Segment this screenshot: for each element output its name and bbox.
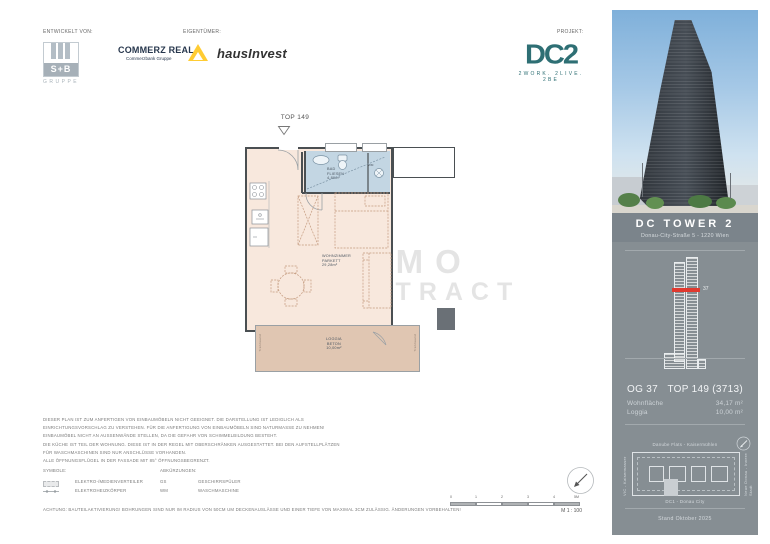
- scale-tick: 2: [501, 495, 503, 499]
- scale-bar-segments: [450, 502, 580, 506]
- sb-gruppe-logo-mark: S+B: [43, 42, 79, 77]
- owner-label: EIGENTÜMER:: [183, 29, 221, 35]
- siteplan-north-label: Danube Flats - Kaisermühlen: [630, 442, 740, 447]
- floorplan-sheet: ENTWICKELT VON: S+B GRUPPE EIGENTÜMER: C…: [0, 0, 770, 544]
- loggia-label: Loggia: [627, 409, 648, 416]
- floor-marker: [672, 288, 700, 292]
- disclaimer-line: EINBAUMÖBEL NICHT AN AUSSENWÄNDE STELLEN…: [43, 432, 340, 440]
- divider: [625, 508, 745, 509]
- warning-note: ACHTUNG: BAUTEILAKTIVIERUNG! BOHRUNGEN S…: [43, 506, 461, 514]
- symbols-label: SYMBOLE:: [43, 468, 67, 473]
- siteplan-dc2-highlight: [664, 479, 678, 496]
- wohnflaeche-label: Wohnfläche: [627, 400, 663, 407]
- commerzbank-triangle-icon: [188, 44, 208, 61]
- plan-date: Stand Oktober 2025: [612, 516, 758, 522]
- symbol-label-1: ELEKTRO-/MEDIENVERTEILER: [75, 479, 143, 484]
- hausinvest-logo: hausInvest: [217, 46, 287, 61]
- abbreviations-label: ABKÜRZUNGEN:: [160, 468, 197, 473]
- siteplan-south-label: DC1 - Donau City: [630, 499, 740, 504]
- wohnflaeche-value: 34,17 m²: [716, 400, 743, 407]
- disclaimer-line: EINRICHTUNGSVORSCHLAG ZU VERSTEHEN. FÜR …: [43, 424, 340, 432]
- abbr-gs-label: GESCHIRRSPÜLER: [198, 479, 241, 484]
- tower-photo: [612, 10, 758, 213]
- plan-linework: [243, 113, 458, 379]
- scale-label: M 1 : 100: [542, 508, 582, 514]
- scale-tick: 1: [475, 495, 477, 499]
- site-plan: Danube Flats - Kaisermühlen VIC - Kaiser…: [612, 430, 758, 505]
- siteplan-west-label: VIC - Kaiserwasser: [622, 452, 627, 496]
- disclaimer-line: DIE KÜCHE IST TEIL DER WOHNUNG. DIESE IS…: [43, 441, 340, 449]
- elektroheizkoerper-icon: [43, 489, 59, 494]
- dc2-logo: DC2 2WORK. 2LIVE. 2BE: [516, 42, 586, 83]
- loggia-value: 10,00 m²: [716, 409, 743, 416]
- north-arrow-icon: [736, 436, 751, 451]
- divider: [625, 250, 745, 251]
- divider: [625, 424, 745, 425]
- sb-gruppe-logo: S+B GRUPPE: [43, 42, 77, 85]
- siteplan-building-outline: [632, 452, 740, 496]
- project-label: PROJEKT:: [557, 29, 583, 35]
- sb-gruppe-subtitle: GRUPPE: [43, 79, 77, 85]
- unit-info: OG 37 TOP 149 (3713) Wohnfläche 34,17 m²…: [627, 384, 743, 416]
- building-name: DC TOWER 2: [612, 213, 758, 230]
- divider: [625, 358, 745, 359]
- scale-bar: 0 1 2 3 4 5M M 1 : 100: [450, 495, 590, 515]
- symbol-label-2: ELEKTROHEIZKÖRPER: [75, 488, 126, 493]
- siteplan-east-label: Neue Donau - Innere Stadt: [743, 452, 753, 496]
- disclaimer-line: FÜR WASCHMASCHINEN SIND NUR ANSCHLÜSSE V…: [43, 449, 340, 457]
- scale-tick: 4: [553, 495, 555, 499]
- project-sidebar: DC TOWER 2 Donau-City-Straße 5 - 1220 Wi…: [612, 10, 758, 535]
- dc2-logo-tagline: 2WORK. 2LIVE. 2BE: [516, 71, 586, 83]
- scale-tick: 0: [450, 495, 452, 499]
- floor-label: OG 37: [627, 384, 658, 395]
- dc2-logo-name: DC2: [516, 43, 586, 68]
- elektro-verteiler-icon: [43, 481, 59, 487]
- sb-gruppe-name: S+B: [44, 63, 78, 76]
- developed-by-label: ENTWICKELT VON:: [43, 29, 93, 35]
- building-address: Donau-City-Straße 5 - 1220 Wien: [612, 233, 758, 239]
- unit-number: TOP 149 (3713): [667, 384, 743, 395]
- floor-marker-label: 37: [703, 286, 709, 292]
- building-caption: DC TOWER 2 Donau-City-Straße 5 - 1220 Wi…: [612, 213, 758, 242]
- disclaimer-line: ALLE ÖFFNUNGSFLÜGEL IN DER FASSADE MIT 8…: [43, 457, 340, 465]
- abbr-wm: WM: [160, 488, 168, 493]
- north-arrow-icon: [566, 466, 595, 495]
- floorplan-drawing: TOP 149 BAD FLIESEN 4,89m² WM WOHNZIMMER…: [243, 113, 458, 379]
- commerz-real-logo: COMMERZ REAL Commerzbank Gruppe: [118, 45, 194, 61]
- scale-tick: 5M: [574, 495, 579, 499]
- abbr-wm-label: WASCHMASCHINE: [198, 488, 239, 493]
- disclaimer-block: DIESER PLAN IST ZUM ANFERTIGEN VON EINBA…: [43, 416, 340, 465]
- commerz-real-name: COMMERZ REAL: [118, 45, 194, 55]
- sb-bars-icon: [44, 43, 78, 62]
- abbr-gs: GS: [160, 479, 167, 484]
- commerz-real-subtitle: Commerzbank Gruppe: [126, 56, 194, 61]
- scale-tick: 3: [527, 495, 529, 499]
- disclaimer-line: DIESER PLAN IST ZUM ANFERTIGEN VON EINBA…: [43, 416, 340, 424]
